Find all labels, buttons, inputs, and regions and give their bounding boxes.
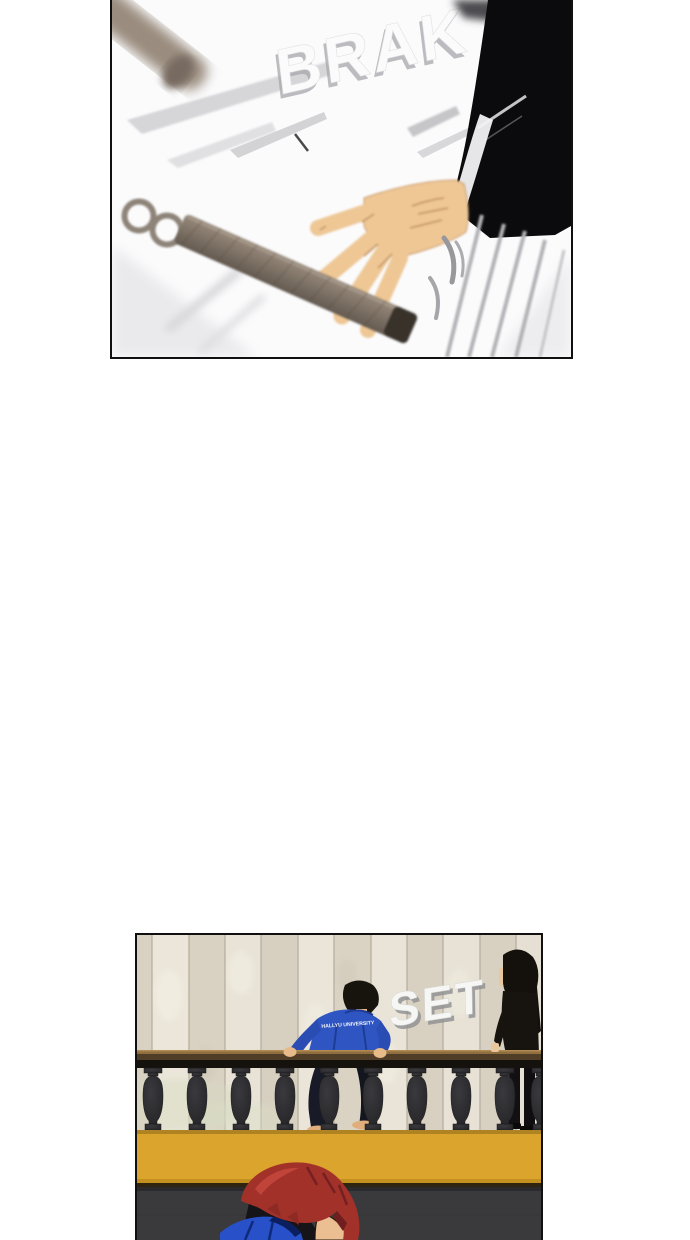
balustrade-rail — [137, 1050, 541, 1068]
panel-bottom-art: SET SET — [137, 935, 541, 1240]
panel-top-art: BRAK BRAK — [112, 0, 571, 357]
panel-top: BRAK BRAK — [110, 0, 573, 359]
woman-hand — [491, 1043, 499, 1052]
webtoon-page: BRAK BRAK — [0, 0, 690, 1240]
yellow-ledge — [137, 1130, 541, 1187]
panel-bottom: SET SET — [135, 933, 543, 1240]
man-hand-right — [374, 1048, 387, 1058]
man-hand-left — [284, 1047, 297, 1057]
man-hair — [343, 981, 379, 1014]
